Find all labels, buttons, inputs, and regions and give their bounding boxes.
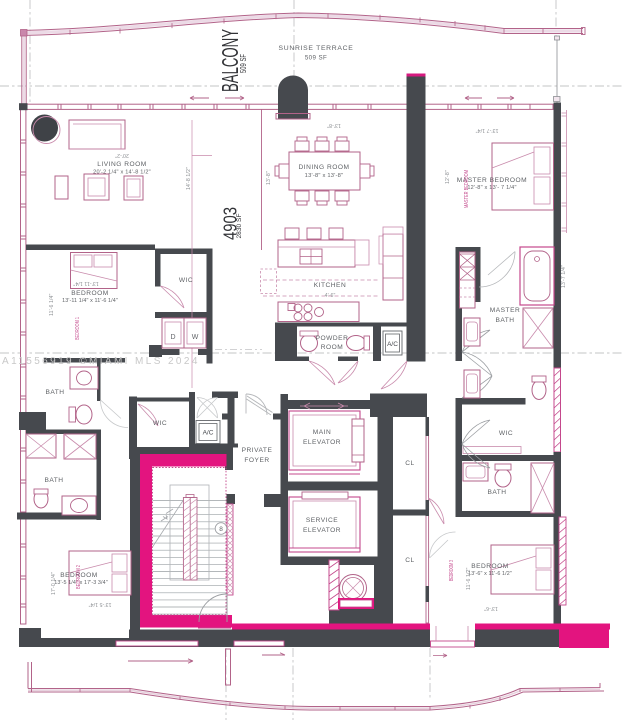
svg-text:SERVICE: SERVICE [306,517,338,524]
svg-text:BEDROOM 3: BEDROOM 3 [449,560,455,581]
svg-text:BEDROOM: BEDROOM [71,290,109,297]
svg-text:PRIVATE: PRIVATE [242,447,273,454]
svg-text:13'-7 1/4": 13'-7 1/4" [561,265,567,288]
svg-text:17'-0 1/4": 17'-0 1/4" [51,572,57,595]
svg-text:DINING ROOM: DINING ROOM [299,164,350,171]
svg-text:W: W [192,334,199,341]
svg-text:D: D [170,334,175,341]
svg-text:CL: CL [405,557,414,564]
svg-text:13'-8": 13'-8" [327,122,341,128]
svg-text:12'-8" x 13'- 7 1/4": 12'-8" x 13'- 7 1/4" [467,185,516,191]
svg-text:FOYER: FOYER [244,457,269,464]
svg-text:BEDROOM: BEDROOM [471,563,509,570]
svg-text:WIC: WIC [179,277,193,284]
svg-text:13'-6" x 11'-6 1/2": 13'-6" x 11'-6 1/2" [468,571,512,577]
svg-text:A/C: A/C [387,341,398,348]
svg-text:BATH: BATH [487,489,506,496]
svg-text:13'-7 1/4": 13'-7 1/4" [476,127,499,133]
svg-text:ELEVATOR: ELEVATOR [303,527,341,534]
svg-text:MAIN: MAIN [313,429,331,436]
svg-text:LIVING ROOM: LIVING ROOM [97,161,146,168]
svg-text:BEDROOM 2: BEDROOM 2 [76,565,82,589]
svg-text:20'-2 1/4" x 14'-8 1/2": 20'-2 1/4" x 14'-8 1/2" [93,170,151,176]
svg-text:13'-8": 13'-8" [266,171,272,185]
svg-text:KITCHEN: KITCHEN [314,282,346,289]
svg-text:WIC: WIC [153,420,167,427]
svg-text:14'-8 1/2": 14'-8 1/2" [186,167,192,190]
svg-text:WIC: WIC [499,430,513,437]
svg-text:A/C: A/C [203,430,214,437]
svg-text:8: 8 [219,526,223,533]
svg-text:SUNRISE TERRACE: SUNRISE TERRACE [279,45,354,52]
svg-text:509 SF: 509 SF [238,54,248,73]
svg-text:11'-6 1/2": 11'-6 1/2" [466,567,472,590]
svg-text:POWDER: POWDER [316,335,349,342]
svg-text:12'-8": 12'-8" [445,170,451,184]
svg-text:13'-11 1/4": 13'-11 1/4" [73,280,99,286]
svg-text:11'-6 1/4": 11'-6 1/4" [49,293,55,316]
svg-text:CL: CL [405,460,414,467]
svg-text:2830 SF: 2830 SF [236,213,243,238]
svg-text:ELEVATOR: ELEVATOR [303,439,341,446]
svg-text:BATH: BATH [45,389,64,396]
svg-text:A11556919 ©MIAMI MLS 2024: A11556919 ©MIAMI MLS 2024 [2,356,200,367]
svg-text:BEDROOM 1: BEDROOM 1 [75,317,81,340]
svg-text:MASTER: MASTER [490,307,520,314]
svg-text:13'-11 1/4" x 11'-6 1/4": 13'-11 1/4" x 11'-6 1/4" [62,298,118,304]
svg-text:13'-6": 13'-6" [484,605,498,611]
svg-text:20'-2": 20'-2" [115,152,129,158]
svg-text:BATH: BATH [44,477,63,484]
svg-text:509 SF: 509 SF [305,55,327,62]
svg-text:BATH: BATH [495,317,514,324]
svg-text:13'-8" x 13'-8": 13'-8" x 13'-8" [305,173,344,179]
svg-text:MASTER BEDROOM: MASTER BEDROOM [464,170,470,208]
svg-text:13'-5 1/4": 13'-5 1/4" [89,601,112,607]
svg-text:4'-6": 4'-6" [325,293,336,299]
svg-text:ROOM: ROOM [321,344,344,351]
